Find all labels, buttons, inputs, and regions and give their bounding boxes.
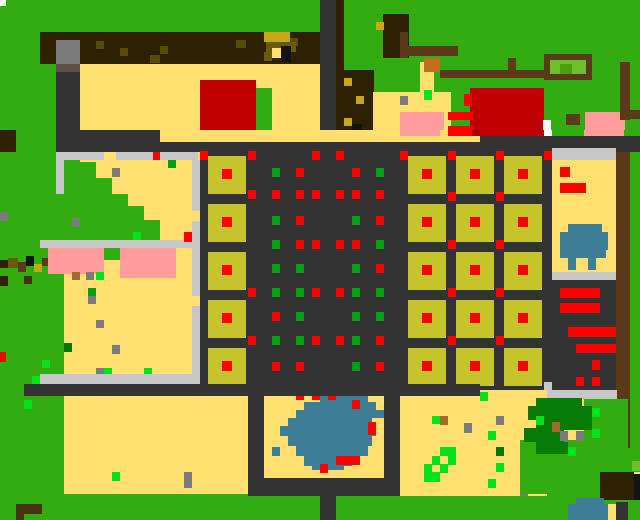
field-stone	[72, 218, 80, 227]
shed-se[interactable]	[600, 472, 634, 500]
crop-dot	[336, 190, 344, 199]
plot-crop-dot	[470, 169, 480, 179]
crop-dot	[296, 362, 304, 371]
road-south	[24, 384, 480, 396]
crop-dot	[312, 288, 320, 297]
pond-water[interactable]	[304, 402, 376, 410]
crop-dot	[272, 216, 280, 225]
road-west	[56, 130, 160, 152]
crop-dot	[312, 190, 320, 199]
junction-dot	[448, 192, 456, 201]
field-stone	[112, 345, 120, 354]
junction-dot	[496, 240, 504, 249]
junction-dot	[448, 288, 456, 297]
barn[interactable]	[470, 88, 544, 136]
crop-dot	[24, 400, 32, 409]
plot-crop-dot	[222, 169, 232, 179]
fence-east	[624, 110, 640, 119]
grass-east-strip	[630, 152, 640, 472]
feed-box	[560, 167, 570, 177]
shed-se-dark	[634, 474, 640, 500]
crate[interactable]	[424, 58, 440, 72]
crop-dot	[376, 216, 384, 225]
pond-water[interactable]	[296, 446, 368, 456]
crop-dot	[272, 336, 280, 345]
junction-dot	[336, 151, 344, 160]
plot-crop-dot	[422, 313, 432, 323]
stump	[0, 260, 8, 268]
plot-crop-dot	[518, 169, 528, 179]
trunk-speckle	[8, 258, 18, 268]
crop-dot	[376, 362, 384, 371]
crop-dot	[336, 336, 344, 345]
bush-se	[632, 461, 640, 471]
trunk-speckle	[34, 264, 42, 272]
crop-dot	[376, 264, 384, 273]
fence-ltgray	[192, 306, 200, 374]
junction-dot	[248, 190, 256, 199]
yard-stone	[400, 96, 408, 105]
crop-dot	[488, 431, 496, 440]
plot-crop-dot	[222, 265, 232, 275]
crop-dot	[296, 288, 304, 297]
edge-strip	[472, 130, 480, 136]
pond-puddle	[272, 447, 280, 456]
pond-flower	[368, 422, 376, 435]
red-item	[576, 377, 584, 386]
sprout-trail	[424, 472, 440, 482]
crop-dot	[336, 240, 344, 249]
pond-water[interactable]	[288, 436, 372, 446]
junction-dot	[312, 151, 320, 160]
crop-dot	[592, 408, 600, 417]
barn-crate	[448, 112, 473, 120]
field-stone	[184, 472, 192, 488]
edge-strip	[448, 130, 472, 136]
plot-crop-dot	[422, 361, 432, 371]
barn-crate	[464, 94, 472, 106]
crop-dot	[296, 240, 304, 249]
sprout-trail	[440, 464, 448, 473]
farmhouse[interactable]	[200, 80, 256, 132]
crop-dot	[272, 362, 280, 371]
crop-dot	[168, 160, 176, 168]
feed-trough	[560, 183, 586, 193]
dirt-strip	[336, 0, 344, 70]
dirt-speckle	[96, 41, 104, 49]
fence-ltgray	[116, 152, 153, 160]
bench-leg	[16, 512, 24, 520]
crop-dot	[376, 240, 384, 249]
fence-ltgray	[56, 152, 104, 160]
farmhouse-hedge	[256, 88, 272, 134]
trunk-speckle	[26, 256, 34, 266]
pen-border	[552, 148, 616, 160]
pen-border	[552, 272, 616, 280]
crop-dot	[312, 336, 320, 345]
junction-dot	[448, 240, 456, 249]
pond-flower	[320, 464, 328, 473]
mine-roof[interactable]	[264, 32, 290, 42]
junction-dot	[544, 151, 552, 160]
crop-dot	[424, 90, 432, 100]
fence-ltgray	[192, 221, 200, 296]
plot-crop-dot	[518, 265, 528, 275]
pond-water[interactable]	[296, 410, 384, 418]
crop-dot	[352, 288, 360, 297]
field-twig	[72, 272, 80, 280]
crop-dot	[336, 288, 344, 297]
junction-dot	[248, 288, 256, 297]
pink-bed[interactable]	[48, 248, 104, 274]
crop-dot	[296, 312, 304, 321]
path-north	[56, 72, 80, 132]
dirt-speckle	[160, 46, 168, 54]
crop-dot	[480, 392, 488, 401]
crop-dot	[32, 376, 40, 384]
fence-ltgray	[192, 160, 200, 211]
edge-strip	[624, 130, 640, 136]
pig-leg	[568, 258, 576, 270]
crop-dot	[376, 312, 384, 321]
game-map	[0, 0, 640, 520]
field-stone	[496, 416, 504, 425]
crop-dot	[312, 240, 320, 249]
field-stone	[0, 212, 8, 221]
trunk-speckle	[18, 262, 26, 272]
crop-dot	[96, 272, 104, 280]
edge-strip	[480, 130, 544, 136]
crop-dot	[352, 216, 360, 225]
junction-dot	[200, 151, 208, 160]
sand-se	[608, 504, 616, 520]
crop-dot	[296, 168, 304, 177]
dirt-speckle	[150, 55, 160, 63]
bed-border	[40, 240, 200, 248]
pig-head	[600, 232, 608, 250]
red-item-edge	[0, 352, 6, 362]
compost-fill	[560, 64, 572, 74]
field-stone	[112, 168, 120, 177]
road-pond-bottom	[248, 478, 400, 496]
junction-dot	[248, 151, 256, 160]
field-stone	[88, 296, 96, 304]
pond-flower	[336, 456, 360, 465]
pig-leg	[588, 258, 596, 270]
crop-dot	[592, 429, 600, 438]
crop-dot	[272, 312, 280, 321]
trunk-speckle	[24, 276, 32, 284]
crop-dot	[352, 362, 360, 371]
sprout-trail	[448, 456, 456, 465]
door-step	[56, 64, 80, 72]
plot-crop-dot	[518, 313, 528, 323]
crop-dot	[568, 447, 576, 456]
dirt-speckle	[344, 78, 352, 86]
red-item	[592, 377, 600, 386]
dirt-speckle	[344, 118, 352, 126]
crop-dot	[352, 336, 360, 345]
junction-dot	[496, 336, 504, 345]
crop-dot	[352, 240, 360, 249]
crop-dot	[296, 190, 304, 199]
fence-ltgray	[40, 374, 200, 384]
mine-entrance[interactable]	[281, 46, 291, 62]
junction-dot	[496, 192, 504, 201]
field-stone	[560, 431, 568, 441]
field-twig	[552, 422, 560, 432]
road-vertical-north	[320, 0, 336, 140]
crop-dot	[272, 190, 280, 199]
junction-dot	[248, 336, 256, 345]
red-item	[592, 360, 600, 370]
fence-north	[440, 70, 552, 78]
crop-dot	[272, 168, 280, 177]
crop-dot	[64, 343, 72, 352]
crop-dot	[352, 312, 360, 321]
fence-ltgray	[56, 160, 64, 194]
white-dot	[0, 0, 6, 6]
sprout-trail	[440, 447, 456, 456]
plot-crop-dot	[222, 217, 232, 227]
crop-dot	[296, 336, 304, 345]
crop-dot	[272, 240, 280, 249]
crop-dot	[496, 463, 504, 472]
crop-dot	[352, 190, 360, 199]
edge-strip	[584, 130, 624, 136]
fence-ltgray	[160, 152, 198, 160]
plot-crop-dot	[470, 265, 480, 275]
junction-dot	[448, 336, 456, 345]
road-pond-right	[384, 390, 400, 478]
red-shelf-bar	[560, 303, 600, 313]
stump	[0, 130, 16, 152]
crop-dot	[133, 232, 141, 240]
crop-dot	[376, 336, 384, 345]
stone-door[interactable]	[56, 40, 80, 64]
red-shelf-bar	[576, 344, 616, 353]
crop-dot	[112, 472, 120, 481]
plot-crop-dot	[422, 217, 432, 227]
plot-crop-dot	[470, 217, 480, 227]
edge-strip	[400, 130, 440, 136]
junction-dot	[400, 151, 408, 160]
road-mid	[160, 142, 320, 152]
sprout-trail	[432, 456, 440, 465]
mine-frame	[264, 52, 272, 61]
water-se[interactable]	[568, 504, 608, 520]
fence-north	[400, 46, 458, 56]
crop-dot	[352, 264, 360, 273]
crop-dot	[376, 288, 384, 297]
crop-dot	[496, 447, 504, 456]
plot-crop-dot	[470, 313, 480, 323]
field-stone	[86, 272, 94, 280]
crop-dot	[536, 416, 544, 425]
plot-crop-dot	[518, 217, 528, 227]
red-shelf-bar	[560, 288, 600, 298]
crop-dot	[272, 288, 280, 297]
field-stone	[576, 431, 584, 441]
field-stone	[96, 320, 104, 328]
fence-post	[508, 58, 516, 70]
plot-crop-dot	[222, 313, 232, 323]
junction-dot	[448, 151, 456, 160]
plot-crop-dot	[222, 361, 232, 371]
plot-crop-dot	[422, 265, 432, 275]
crop-dot	[296, 264, 304, 273]
junction-dot	[496, 288, 504, 297]
crop-dot	[376, 168, 384, 177]
red-shelf-bar	[568, 327, 616, 337]
plot-crop-dot	[518, 361, 528, 371]
pond-flower	[352, 400, 360, 409]
red-item	[184, 232, 192, 242]
dirt-speckle	[120, 48, 128, 56]
plot-crop-dot	[422, 169, 432, 179]
pink-bed[interactable]	[120, 248, 176, 278]
tree-speckle	[376, 22, 384, 30]
crop-dot	[352, 168, 360, 177]
crop-dot	[272, 264, 280, 273]
crop-dot	[432, 416, 440, 424]
fence-piece	[566, 114, 580, 125]
road-south-stub	[320, 496, 336, 520]
field-stone	[464, 423, 472, 433]
plot-crop-dot	[470, 361, 480, 371]
junction-dot	[496, 151, 504, 160]
field-twig	[440, 416, 448, 425]
dirt-speckle	[236, 40, 246, 48]
dirt-speckle	[356, 96, 364, 104]
crop-dot	[376, 190, 384, 199]
crop-dot	[296, 216, 304, 225]
edge-strip	[552, 130, 568, 136]
road-se	[616, 502, 628, 520]
pond-water[interactable]	[280, 426, 376, 436]
crop-dot	[42, 360, 50, 368]
stump	[0, 276, 8, 286]
crop-dot	[88, 288, 96, 296]
grass-se-corner	[628, 500, 640, 520]
big-tree	[536, 442, 568, 454]
edge-strip	[544, 130, 552, 136]
crop-dot	[488, 479, 496, 488]
